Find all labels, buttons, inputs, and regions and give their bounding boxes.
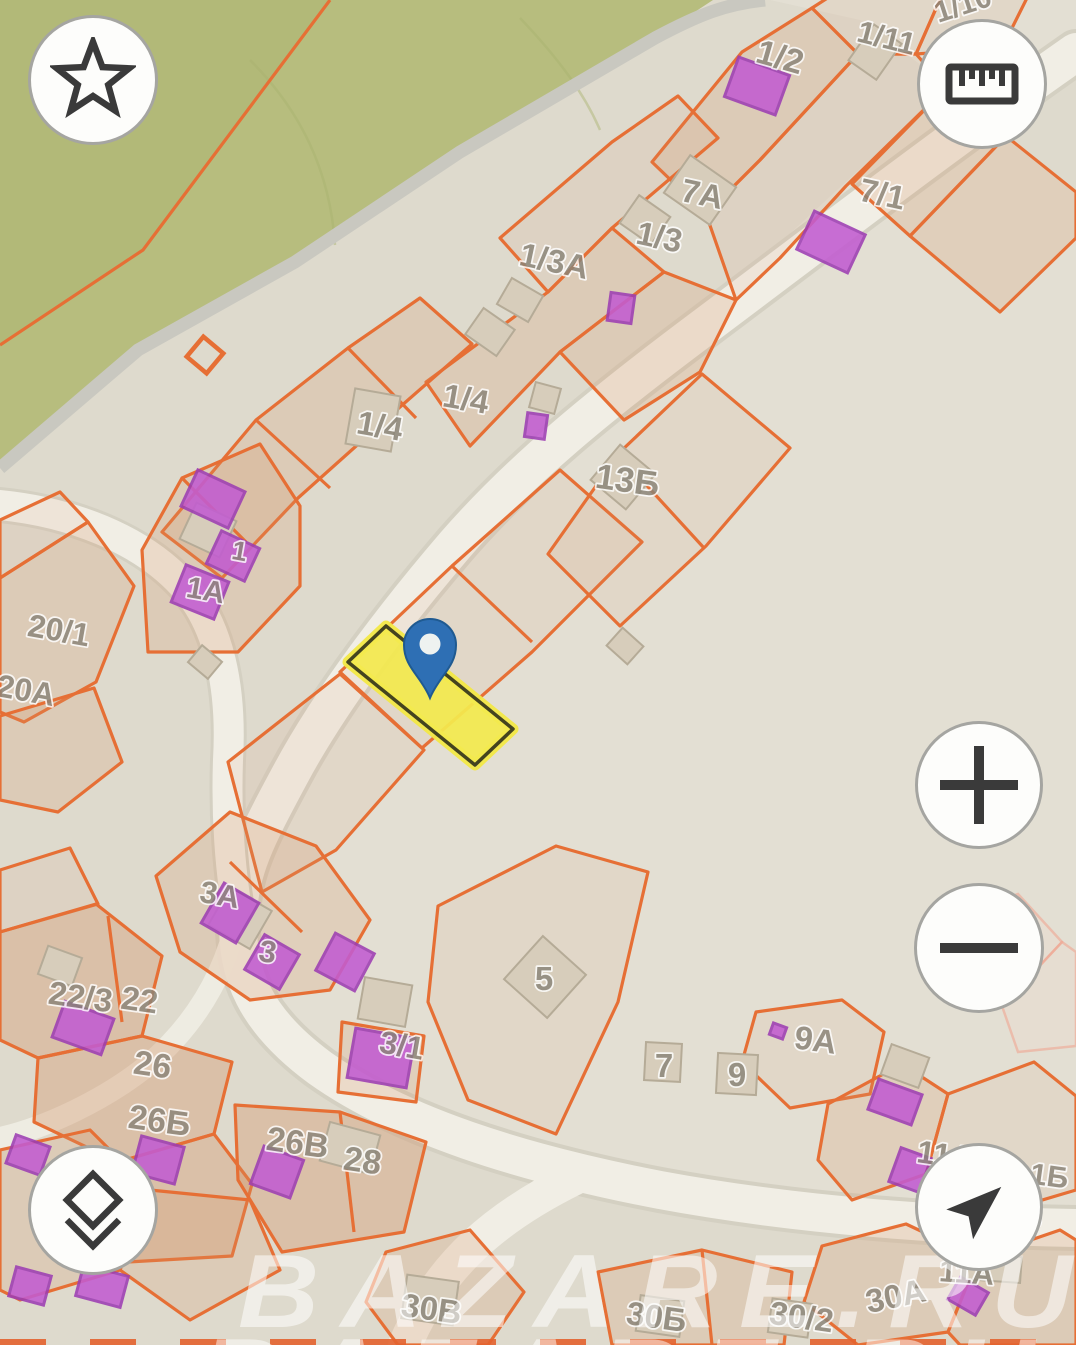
map-canvas[interactable]: 1/101/111/27/17А1/31/3А1/41/413Б11А20/12… — [0, 0, 1076, 1345]
map-label: 28 — [341, 1140, 384, 1183]
locate-button[interactable] — [915, 1143, 1043, 1271]
star-icon — [50, 37, 136, 123]
map-label: 9 — [728, 1056, 746, 1093]
map-label: 7А — [678, 171, 727, 216]
parcel-boundary — [187, 337, 224, 374]
measure-button[interactable] — [917, 19, 1047, 149]
map-label: 9А — [792, 1018, 839, 1061]
map-label: 26 — [131, 1044, 174, 1087]
favorites-button[interactable] — [28, 15, 158, 145]
map-label: 1А — [184, 571, 228, 610]
navigation-arrow-icon — [933, 1161, 1025, 1253]
plus-icon — [934, 740, 1024, 830]
layers-button[interactable] — [28, 1145, 158, 1275]
map-label: 22 — [119, 979, 161, 1021]
building — [358, 977, 413, 1027]
building-purple — [524, 413, 547, 440]
building-purple — [607, 292, 635, 323]
building-purple — [769, 1023, 786, 1039]
minus-icon — [934, 903, 1024, 993]
map-label: 3А — [197, 874, 242, 915]
map-label: 7 — [655, 1047, 673, 1084]
map-view[interactable]: 1/101/111/27/17А1/31/3А1/41/413Б11А20/12… — [0, 0, 1076, 1345]
ruler-icon — [936, 38, 1028, 130]
map-label: 3/1 — [377, 1024, 427, 1067]
zoom-in-button[interactable] — [915, 721, 1043, 849]
map-label: 5 — [535, 960, 553, 997]
building — [529, 382, 561, 414]
layers-icon — [47, 1164, 139, 1256]
zoom-out-button[interactable] — [914, 883, 1044, 1013]
